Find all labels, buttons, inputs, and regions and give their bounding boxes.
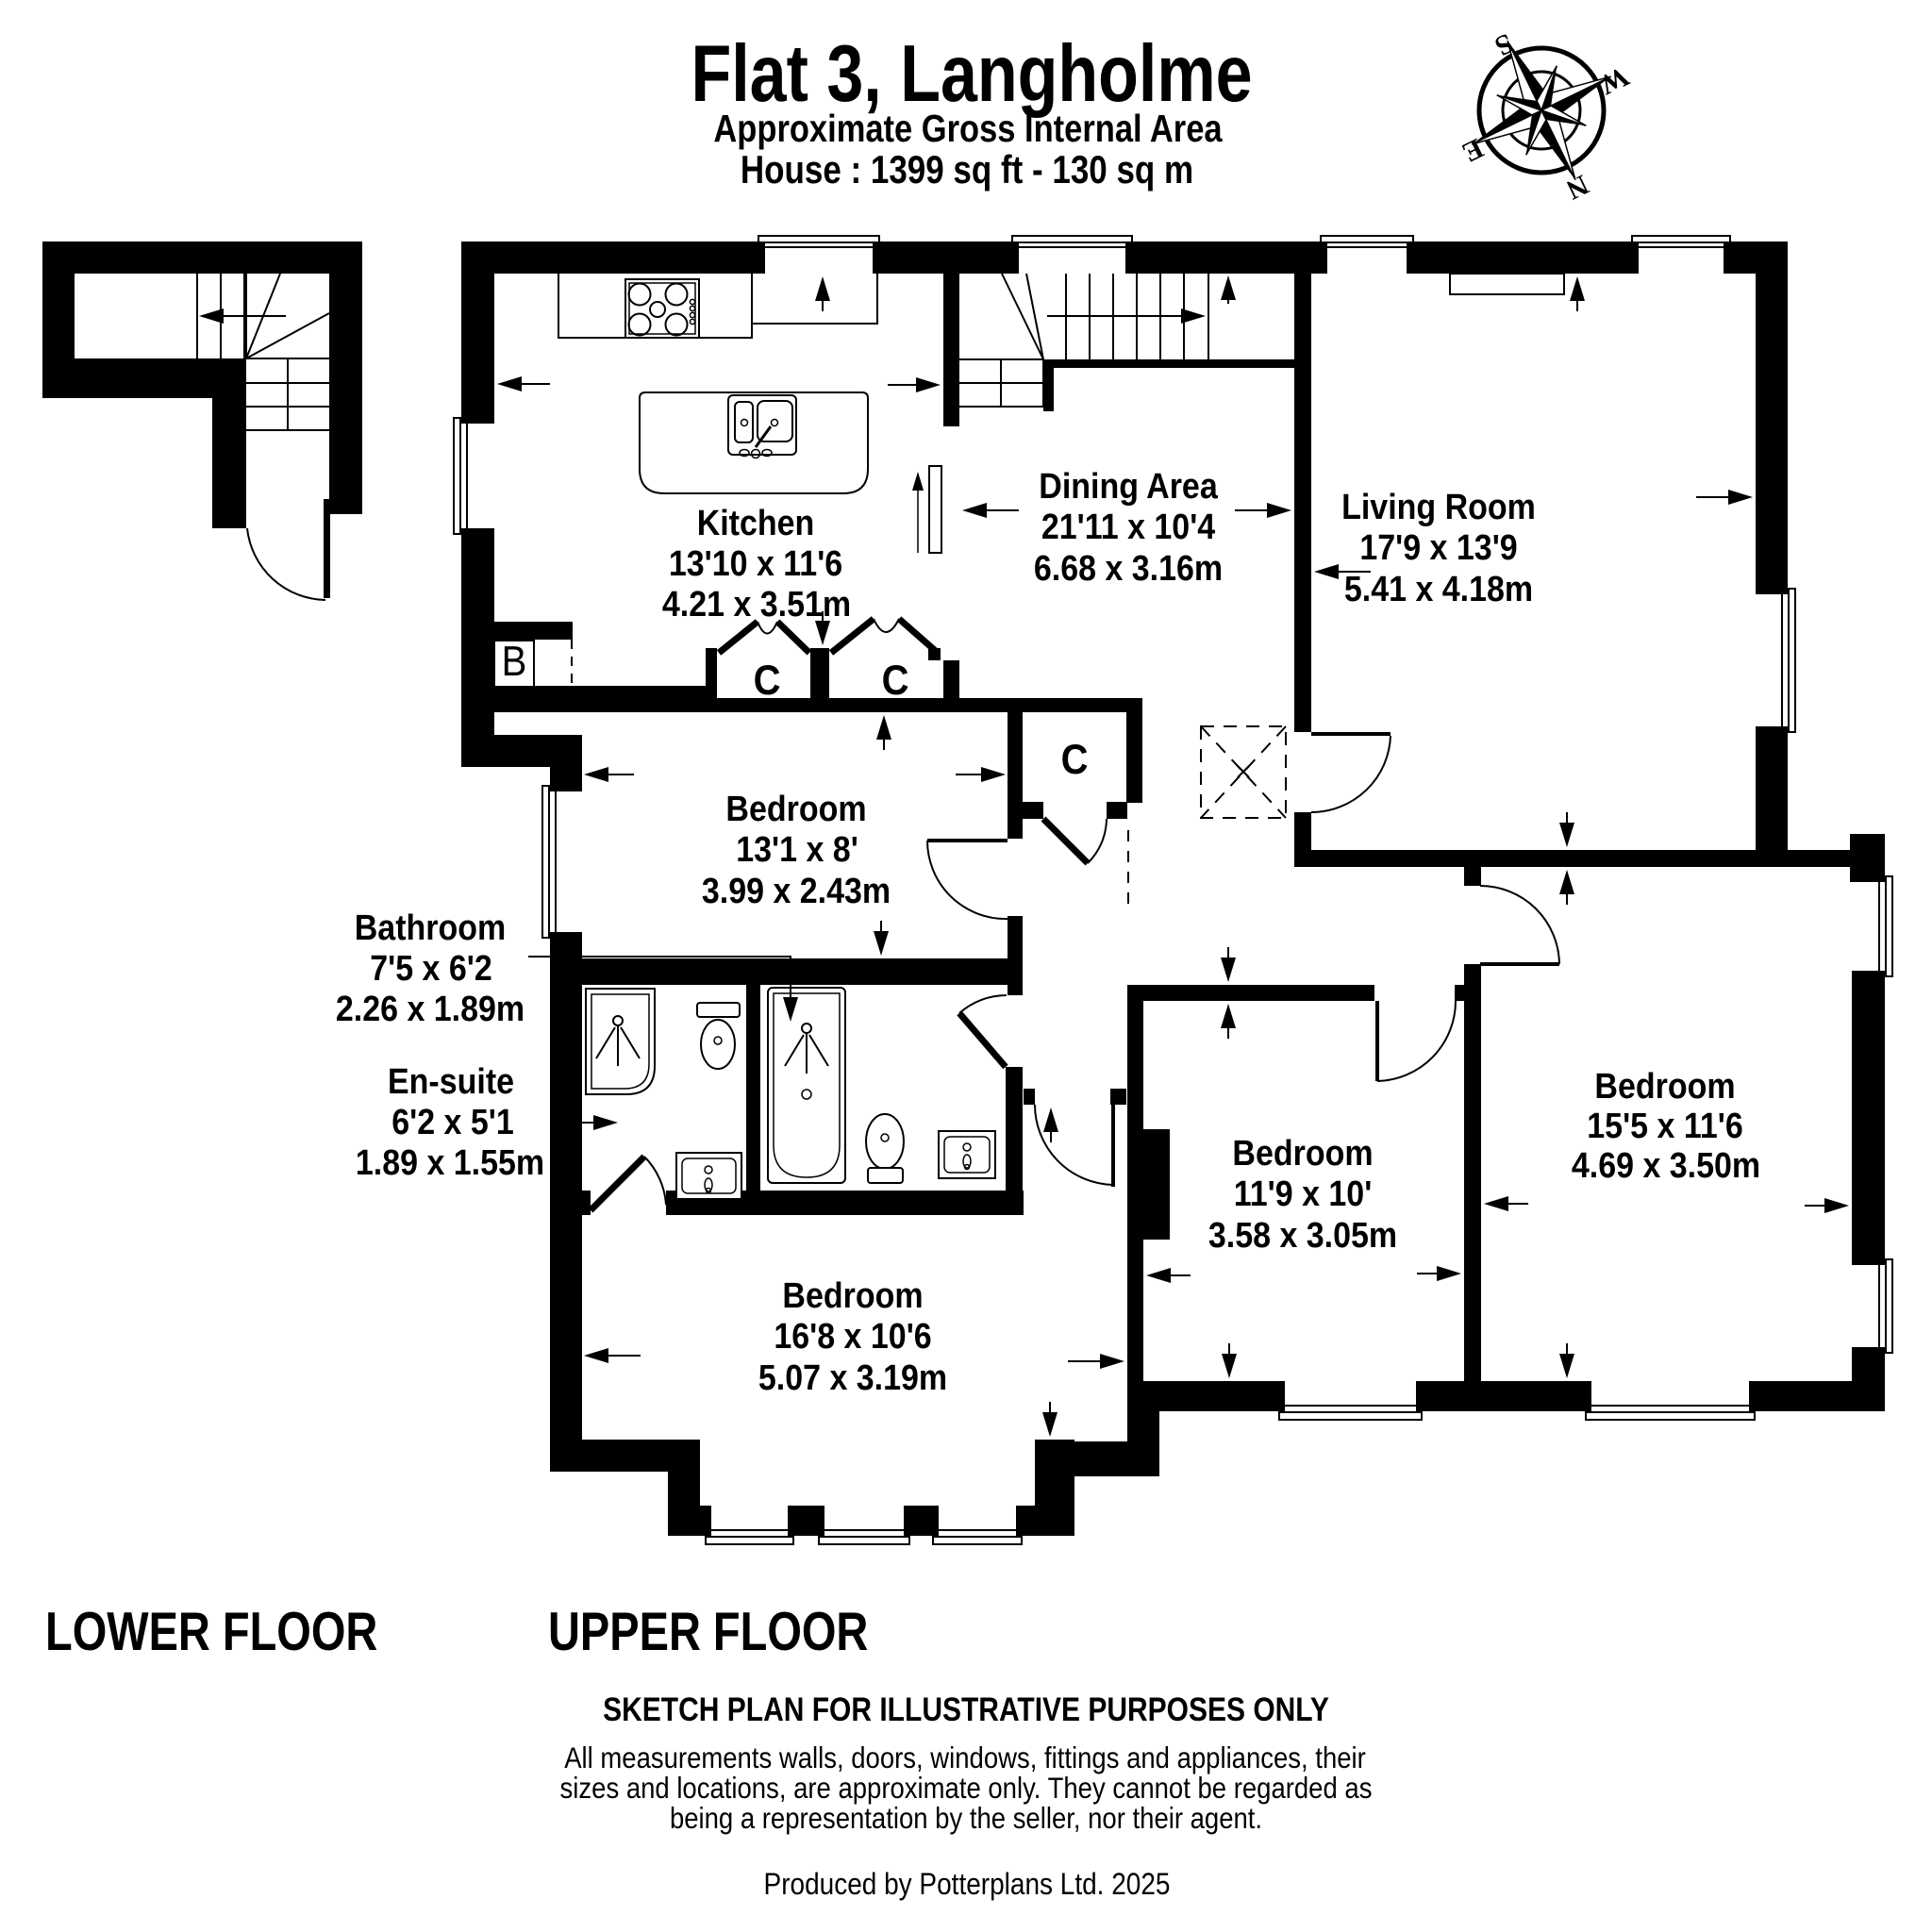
svg-text:Dining Area: Dining Area xyxy=(1039,465,1218,506)
svg-text:House : 1399 sq ft - 130 sq m: House : 1399 sq ft - 130 sq m xyxy=(741,148,1193,192)
svg-text:Bedroom: Bedroom xyxy=(782,1274,923,1315)
svg-text:Produced by Potterplans Ltd. 2: Produced by Potterplans Ltd. 2025 xyxy=(764,1868,1171,1901)
svg-text:Living Room: Living Room xyxy=(1341,486,1536,526)
svg-text:C: C xyxy=(754,657,781,704)
svg-text:7'5 x 6'2: 7'5 x 6'2 xyxy=(370,947,492,988)
svg-text:3.99 x 2.43m: 3.99 x 2.43m xyxy=(702,870,891,910)
svg-text:B: B xyxy=(502,638,527,685)
svg-text:4.21 x 3.51m: 4.21 x 3.51m xyxy=(662,583,851,624)
svg-text:1.89 x 1.55m: 1.89 x 1.55m xyxy=(356,1141,544,1182)
svg-text:13'1 x 8': 13'1 x 8' xyxy=(736,828,858,869)
svg-text:5.41 x 4.18m: 5.41 x 4.18m xyxy=(1344,568,1533,608)
svg-text:11'9 x 10': 11'9 x 10' xyxy=(1234,1173,1373,1213)
svg-text:Flat 3, Langholme: Flat 3, Langholme xyxy=(691,27,1252,118)
svg-text:UPPER FLOOR: UPPER FLOOR xyxy=(548,1603,868,1662)
svg-text:6.68 x 3.16m: 6.68 x 3.16m xyxy=(1034,547,1223,588)
svg-text:C: C xyxy=(882,657,909,704)
svg-text:2.26 x 1.89m: 2.26 x 1.89m xyxy=(336,988,525,1028)
svg-text:SKETCH PLAN FOR ILLUSTRATIVE P: SKETCH PLAN FOR ILLUSTRATIVE PURPOSES ON… xyxy=(603,1690,1329,1728)
svg-text:Bedroom: Bedroom xyxy=(725,788,866,828)
svg-text:4.69 x 3.50m: 4.69 x 3.50m xyxy=(1572,1144,1760,1185)
svg-text:LOWER FLOOR: LOWER FLOOR xyxy=(45,1603,377,1662)
svg-text:En-suite: En-suite xyxy=(388,1060,514,1101)
svg-text:21'11 x 10'4: 21'11 x 10'4 xyxy=(1041,506,1215,546)
svg-text:C: C xyxy=(1061,736,1089,783)
svg-text:5.07 x 3.19m: 5.07 x 3.19m xyxy=(758,1357,947,1397)
svg-text:All measurements walls, doors,: All measurements walls, doors, windows, … xyxy=(564,1741,1366,1774)
svg-text:6'2 x 5'1: 6'2 x 5'1 xyxy=(391,1101,514,1141)
svg-text:16'8 x 10'6: 16'8 x 10'6 xyxy=(774,1315,931,1356)
svg-text:Bathroom: Bathroom xyxy=(355,907,506,947)
svg-text:sizes and locations, are appro: sizes and locations, are approximate onl… xyxy=(560,1772,1373,1805)
svg-text:Kitchen: Kitchen xyxy=(697,502,815,542)
svg-text:being a representation by the: being a representation by the seller, no… xyxy=(670,1802,1262,1835)
svg-text:15'5 x 11'6: 15'5 x 11'6 xyxy=(1587,1105,1742,1145)
svg-text:Approximate Gross Internal Are: Approximate Gross Internal Area xyxy=(713,107,1223,149)
svg-text:13'10 x 11'6: 13'10 x 11'6 xyxy=(669,542,842,583)
svg-text:3.58 x 3.05m: 3.58 x 3.05m xyxy=(1208,1214,1397,1255)
svg-text:Bedroom: Bedroom xyxy=(1594,1065,1735,1106)
svg-text:17'9 x 13'9: 17'9 x 13'9 xyxy=(1359,526,1517,567)
svg-text:Bedroom: Bedroom xyxy=(1232,1132,1373,1173)
